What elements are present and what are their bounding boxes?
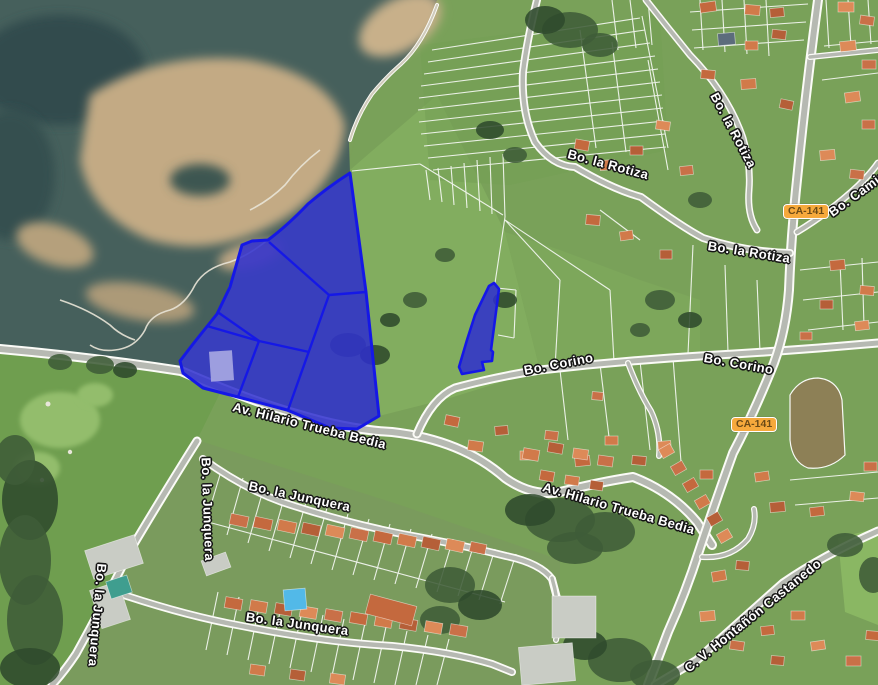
map-viewport[interactable]: Bo. la Rotiza Bo. la Rotiza Bo. la Rotiz… [0,0,878,685]
route-badge-ca141-top: CA-141 [783,204,829,219]
route-badge-ca141-mid: CA-141 [731,417,777,432]
aerial-basemap [0,0,878,685]
building-inside-parcel [209,350,234,382]
tilled-field [790,378,845,468]
